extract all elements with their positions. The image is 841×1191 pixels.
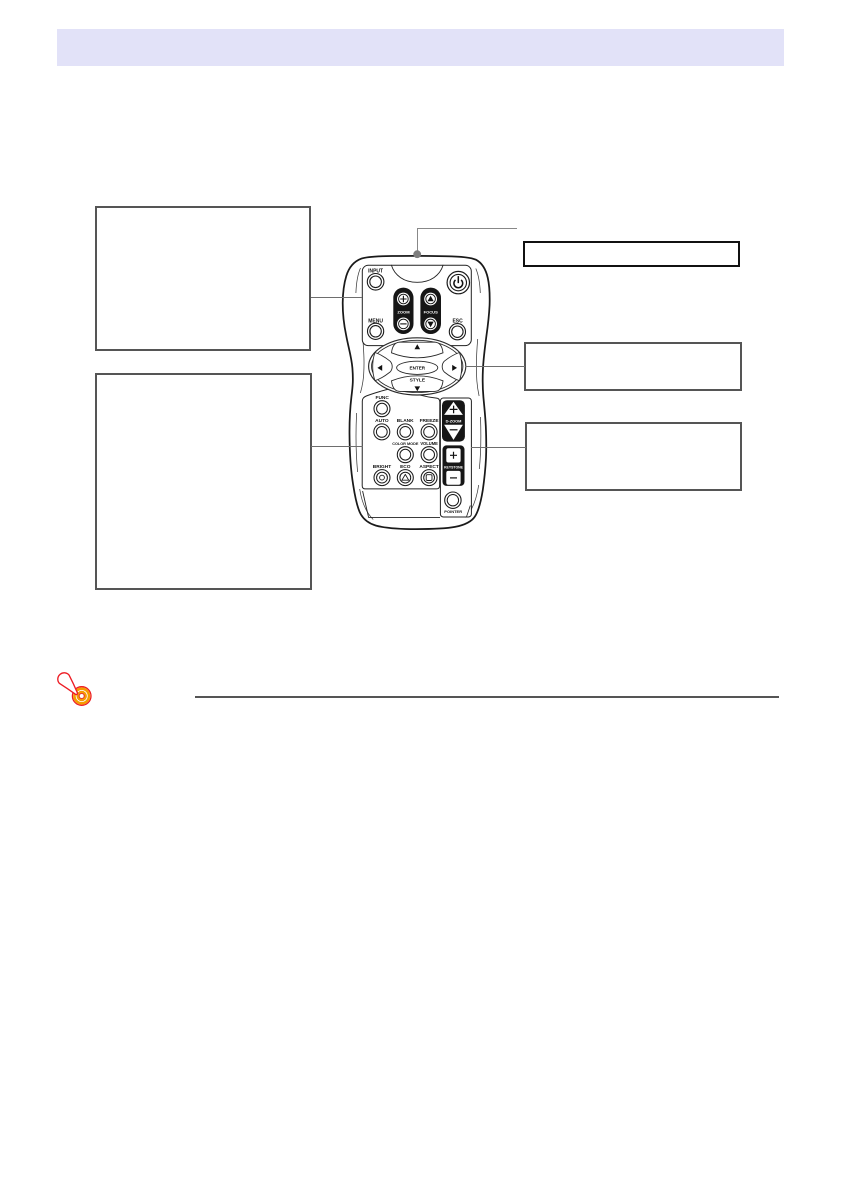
svg-text:BRIGHT: BRIGHT (373, 464, 391, 470)
svg-text:KEYSTONE: KEYSTONE (444, 465, 464, 469)
svg-text:ECO: ECO (400, 464, 411, 470)
svg-text:POINTER: POINTER (444, 509, 462, 514)
svg-text:VOLUME: VOLUME (420, 441, 438, 446)
svg-text:COLOR MODE: COLOR MODE (392, 442, 419, 446)
svg-text:ENTER: ENTER (410, 366, 426, 371)
svg-text:ZOOM: ZOOM (397, 310, 410, 315)
svg-text:STYLE: STYLE (410, 377, 426, 383)
svg-text:D-ZOOM: D-ZOOM (446, 418, 462, 423)
svg-text:AUTO: AUTO (375, 418, 389, 424)
svg-text:BLANK: BLANK (397, 418, 414, 424)
svg-text:FOCUS: FOCUS (424, 310, 438, 315)
svg-text:FREEZE: FREEZE (420, 418, 440, 424)
svg-text:ASPECT: ASPECT (419, 464, 439, 470)
svg-text:FUNC: FUNC (376, 395, 390, 401)
